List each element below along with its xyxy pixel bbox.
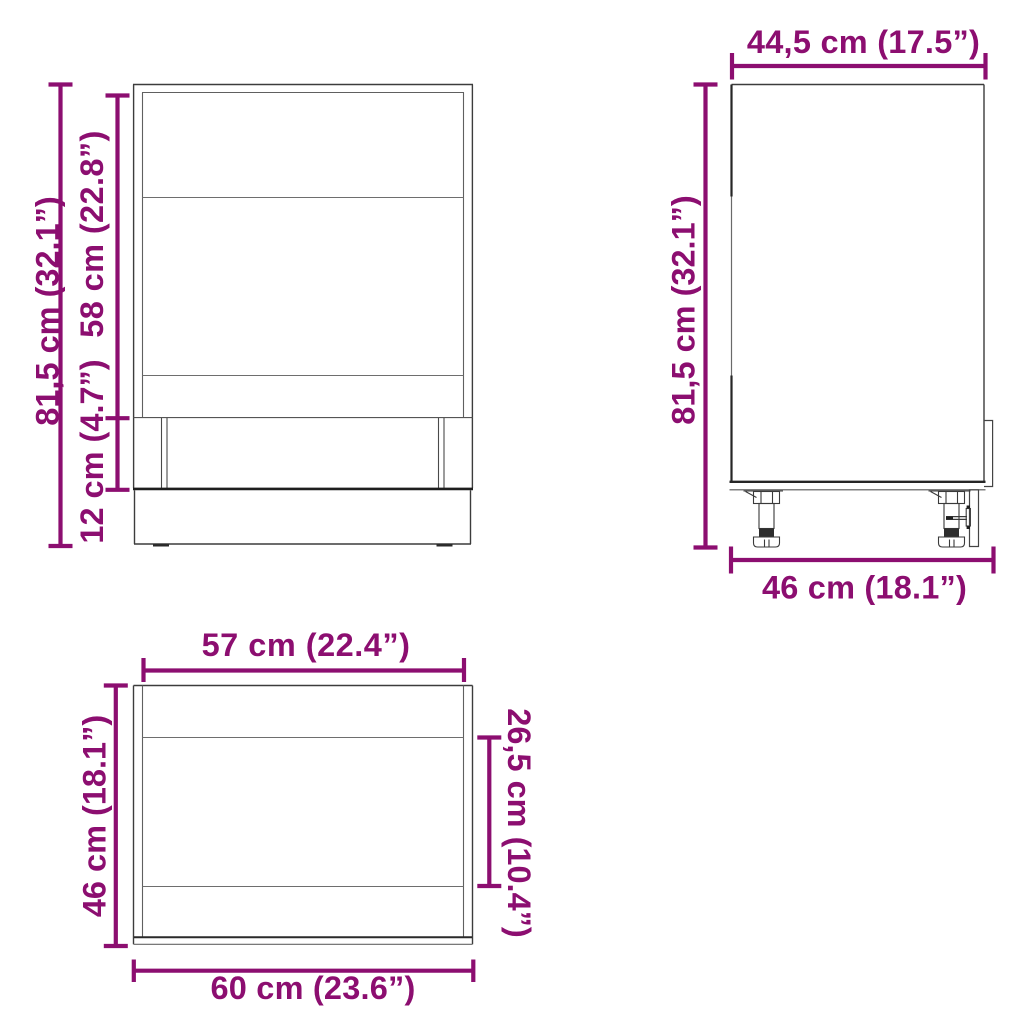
svg-text:81,5 cm (32.1”): 81,5 cm (32.1”)	[30, 196, 66, 425]
svg-text:44,5 cm (17.5”): 44,5 cm (17.5”)	[747, 24, 980, 60]
svg-text:46 cm (18.1”): 46 cm (18.1”)	[762, 570, 967, 606]
svg-text:60 cm (23.6”): 60 cm (23.6”)	[211, 970, 416, 1006]
svg-text:58 cm (22.8”): 58 cm (22.8”)	[74, 130, 110, 338]
svg-text:81,5 cm (32.1”): 81,5 cm (32.1”)	[666, 195, 702, 424]
svg-text:12 cm (4.7”): 12 cm (4.7”)	[74, 359, 110, 543]
svg-text:26,5 cm (10.4”): 26,5 cm (10.4”)	[501, 708, 537, 937]
svg-text:57 cm (22.4”): 57 cm (22.4”)	[202, 627, 411, 663]
svg-text:46 cm (18.1”): 46 cm (18.1”)	[77, 715, 113, 917]
